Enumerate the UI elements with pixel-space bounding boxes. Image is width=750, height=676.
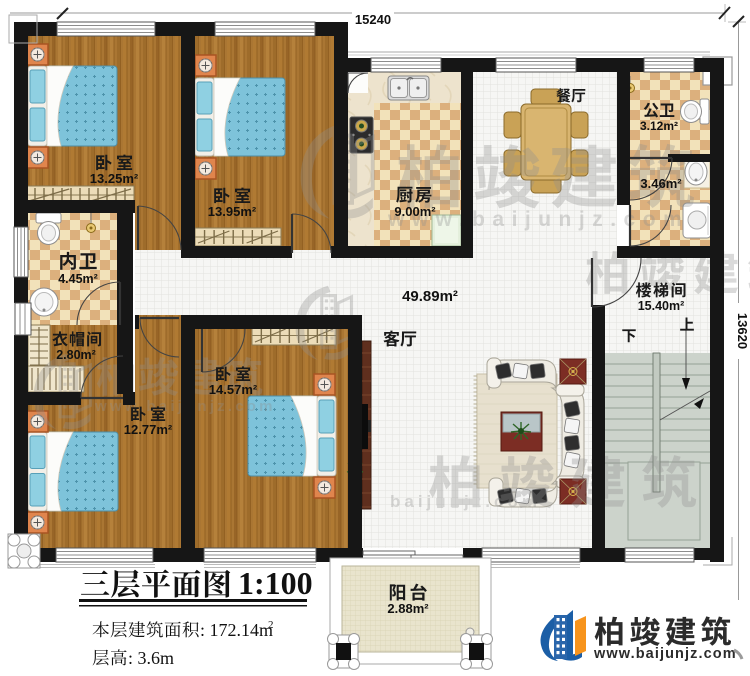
svg-text:2: 2 bbox=[268, 619, 274, 631]
svg-text:13620: 13620 bbox=[735, 313, 750, 349]
svg-text:9.00m²: 9.00m² bbox=[394, 204, 436, 219]
svg-text:13.25m²: 13.25m² bbox=[90, 171, 139, 186]
svg-text:: 172.14m: : 172.14m bbox=[200, 620, 273, 640]
svg-text:3.46m²: 3.46m² bbox=[640, 176, 682, 191]
svg-text:15240: 15240 bbox=[355, 12, 391, 27]
svg-text:2.80m²: 2.80m² bbox=[56, 348, 96, 362]
svg-text:12.77m²: 12.77m² bbox=[124, 422, 173, 437]
svg-text:baijunjz.com: baijunjz.com bbox=[390, 492, 541, 511]
svg-text:13.95m²: 13.95m² bbox=[208, 204, 257, 219]
svg-text:49.89m²: 49.89m² bbox=[402, 288, 458, 305]
svg-text:2.88m²: 2.88m² bbox=[387, 601, 429, 616]
svg-text:14.57m²: 14.57m² bbox=[209, 382, 258, 397]
svg-text:: 3.6m: : 3.6m bbox=[128, 648, 174, 668]
svg-text:3.12m²: 3.12m² bbox=[640, 119, 678, 133]
svg-text:4.45m²: 4.45m² bbox=[58, 272, 98, 286]
svg-text:15.40m²: 15.40m² bbox=[638, 299, 685, 313]
svg-text:www.baijunjz.com: www.baijunjz.com bbox=[593, 646, 737, 662]
svg-text:1:100: 1:100 bbox=[238, 565, 313, 601]
